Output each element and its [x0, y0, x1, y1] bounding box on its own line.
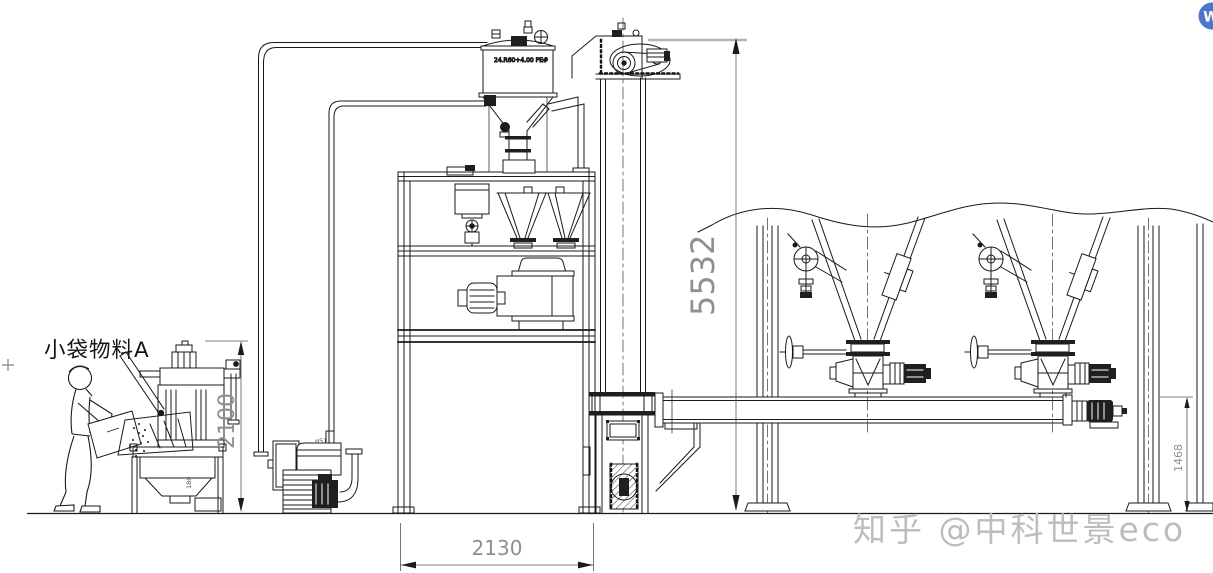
- word-badge[interactable]: W: [1199, 3, 1213, 30]
- svg-text:2130: 2130: [472, 536, 523, 560]
- plus-mark: [2, 359, 14, 371]
- support-column-left: [745, 218, 790, 513]
- mixer-platform-frame: [393, 165, 600, 513]
- receiver-note: 24.R60+4.00 PE#: [494, 57, 548, 64]
- watermark: 知乎 @中科世景eco 知乎 @中科世景eco: [853, 510, 1188, 551]
- silo-break-line: [698, 203, 1213, 232]
- vacuum-receiver: 24.R60+4.00 PE#: [479, 21, 557, 173]
- conveyor-drive-motor: [1072, 400, 1127, 428]
- material-label: 小袋物料A: [44, 338, 150, 363]
- wall-column-far-right: [1186, 224, 1213, 511]
- svg-text:5532: 5532: [684, 235, 722, 316]
- platform-filter-box: [455, 184, 489, 246]
- svg-text:1468: 1468: [1172, 444, 1185, 472]
- rotary-valve: [830, 356, 931, 397]
- svg-text:知乎 @中科世景eco: 知乎 @中科世景eco: [853, 510, 1186, 549]
- support-column-right: [1126, 218, 1171, 513]
- svg-text:2100: 2100: [215, 393, 240, 449]
- dimension-5532: 5532: [648, 38, 747, 511]
- bucket-elevator: [572, 18, 700, 513]
- vacuum-conveying-pipes: [254, 43, 487, 457]
- word-badge-letter: W: [1203, 10, 1213, 26]
- station-note: 180: [185, 477, 193, 489]
- dimension-1468: 1468: [1160, 397, 1193, 512]
- elevator-head: [572, 23, 680, 79]
- cad-drawing-page: 24.R60+4.00 PE#: [0, 0, 1213, 573]
- pipe-note: ø51: [315, 437, 327, 445]
- screw-conveyor: [655, 390, 1127, 433]
- elevator-boot: [583, 392, 655, 513]
- mixer: [458, 258, 574, 330]
- cone-top-valve-assembly: [788, 234, 846, 298]
- cone-vibrator-plate: [877, 252, 916, 302]
- weigh-hoppers: [497, 187, 590, 248]
- dimension-2130: 2130: [401, 523, 594, 571]
- receiver-side-nozzle: [527, 104, 549, 127]
- elevator-feed-chute: [548, 97, 589, 172]
